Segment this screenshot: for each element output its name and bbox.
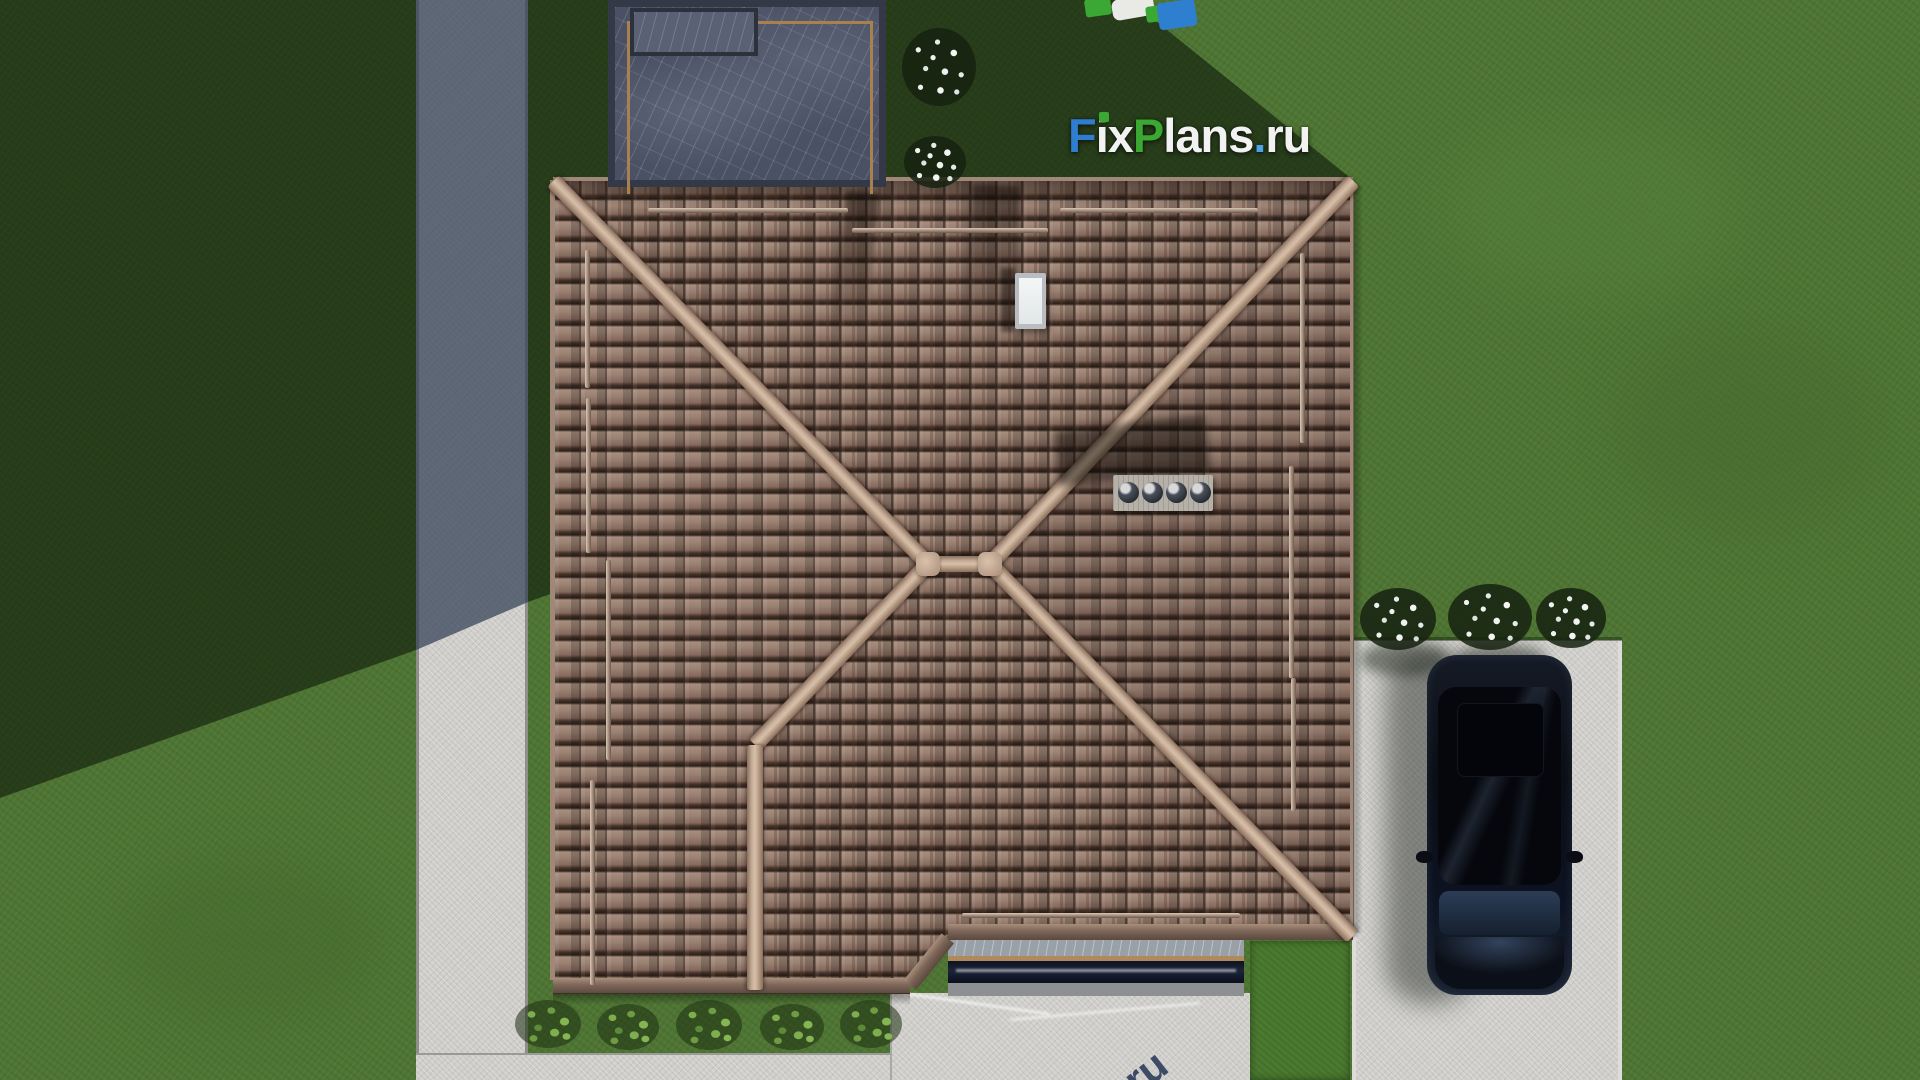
roof-ridge-junction (916, 552, 940, 576)
brand-watermark: FixPlans.ru (1068, 108, 1310, 163)
snow-guard-rail (852, 228, 1048, 233)
car-mirror-left (1416, 851, 1433, 863)
green-shrub (515, 1000, 581, 1048)
car-mirror-right (1566, 851, 1583, 863)
porch-gray-step (948, 983, 1244, 996)
terrace-step-block (630, 8, 758, 56)
green-shrub (676, 1000, 742, 1050)
watermark-seg-p: P (1133, 109, 1163, 162)
vent-cap (1142, 482, 1163, 503)
snow-guard-rail (590, 780, 595, 985)
roof-eave-south-right (948, 924, 1353, 940)
vent-cap (1190, 482, 1211, 503)
white-flower-bush (902, 28, 976, 106)
car-windshield (1439, 891, 1560, 935)
roof-vent-unit (1113, 475, 1213, 511)
porch-marble-band (948, 938, 1244, 996)
roof-ridge-junction (978, 552, 1002, 576)
porch-marble-highlight (956, 969, 1236, 972)
green-shrub (840, 1000, 902, 1048)
white-flower-bush (1360, 588, 1436, 650)
car-suv-black (1427, 655, 1572, 995)
watermark-seg-lans: lans (1163, 109, 1253, 162)
vent-cap (1118, 482, 1139, 503)
lawn-mottle-patch (120, 860, 380, 1020)
skylight-glass (1019, 278, 1042, 324)
watermark-seg-dot: . (1253, 109, 1265, 162)
roof-eave-south-left (553, 978, 910, 994)
backyard-grass-patch (1250, 941, 1350, 1080)
green-shrub (597, 1004, 659, 1050)
white-flower-bush (1448, 584, 1532, 650)
walkway-bottom-horizontal (416, 1053, 892, 1080)
roof-vertical-ridge (747, 745, 763, 990)
vent-cap (1166, 482, 1187, 503)
snow-guard-rail (586, 398, 591, 553)
snow-guard-rail (648, 208, 848, 213)
snow-guard-rail (1300, 253, 1305, 443)
roof-edge-left (550, 180, 555, 980)
snow-guard-rail (585, 250, 590, 388)
snow-guard-rail (606, 560, 611, 760)
skylight-left-shadow (1001, 268, 1015, 332)
white-flower-bush (1536, 588, 1606, 648)
lawn-mottle-patch (1440, 120, 1740, 300)
roof-drop-shadow-east (1353, 185, 1363, 933)
scene: FixPlans.ru (0, 0, 1920, 1080)
snow-guard-rail (962, 913, 1240, 918)
car-hood (1435, 937, 1564, 989)
white-flower-bush (904, 136, 966, 188)
watermark-seg-ru: ru (1265, 109, 1310, 162)
watermark-seg-f: F (1068, 109, 1096, 162)
snow-guard-rail (1060, 208, 1258, 213)
porch-dark-marble (948, 961, 1244, 983)
snow-guard-rail (1289, 466, 1294, 678)
green-shrub (760, 1004, 824, 1050)
patio-concrete (890, 993, 1250, 1080)
lawn-mottle-patch (1620, 330, 1880, 530)
watermark-i-dot-green (1099, 112, 1109, 122)
car-sunroof (1457, 703, 1544, 777)
skylight-window (1015, 273, 1046, 329)
snow-guard-rail (1291, 678, 1296, 811)
logo-tile-blue (1156, 0, 1197, 31)
